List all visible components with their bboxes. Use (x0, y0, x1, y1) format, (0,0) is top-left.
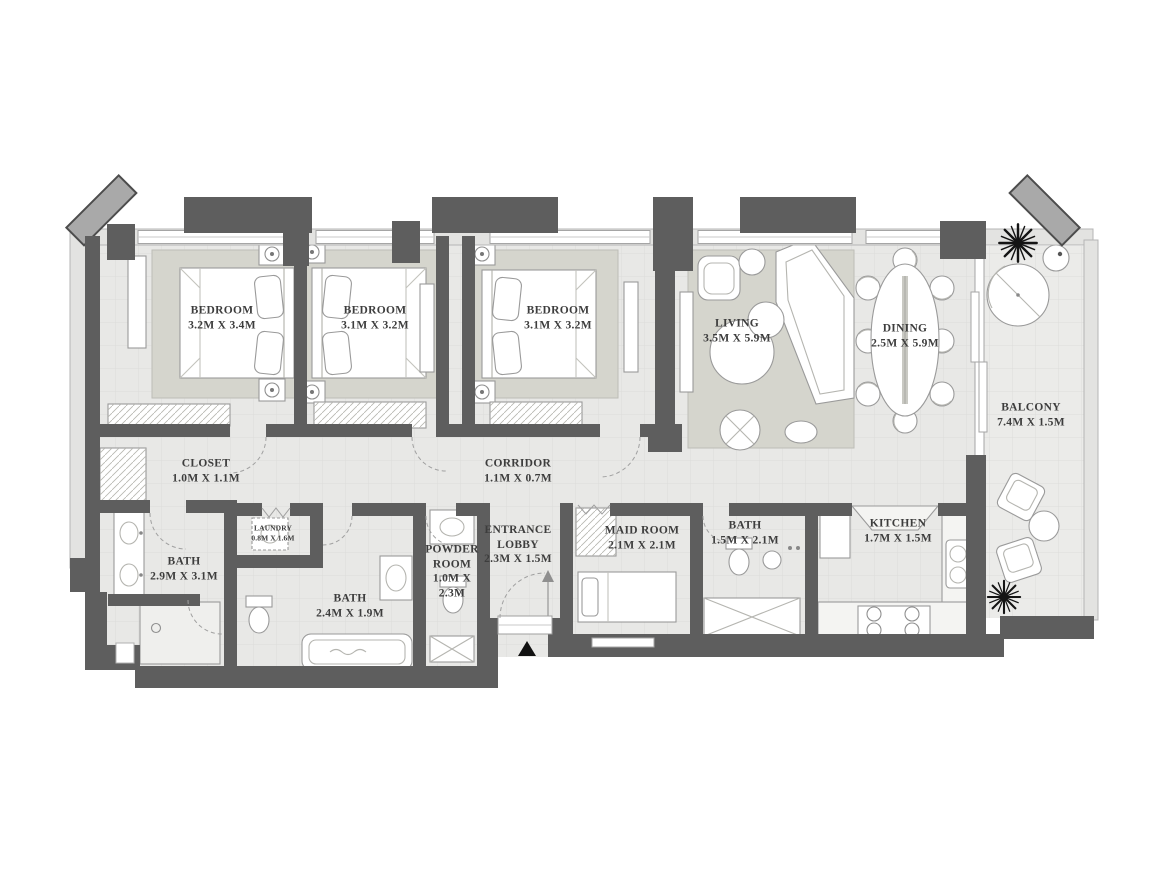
dresser (624, 282, 638, 372)
room-name: KITCHEN (848, 516, 948, 531)
room-dims: 0.8M X 1.6M (238, 533, 308, 543)
toilet (729, 549, 749, 575)
room-dims: 7.4M X 1.5M (981, 415, 1081, 430)
room-dims: 3.1M X 3.2M (320, 318, 430, 333)
room-label-bath-3: BATH 1.5M X 2.1M (700, 518, 790, 547)
room-dims: 1.7M X 1.5M (848, 531, 948, 546)
room-name: BATH (305, 591, 395, 606)
room-label-bedroom-3: BEDROOM 3.1M X 3.2M (503, 303, 613, 332)
room-dims: 1.0M X 1.1M (151, 471, 261, 486)
room-name: BALCONY (981, 400, 1081, 415)
bidet (763, 551, 781, 569)
room-name: BATH (139, 554, 229, 569)
room-name: BEDROOM (503, 303, 613, 318)
plant-icon (988, 581, 1020, 613)
room-label-maid-room: MAID ROOM 2.1M X 2.1M (584, 523, 700, 552)
room-label-closet: CLOSET 1.0M X 1.1M (151, 456, 261, 485)
room-label-living: LIVING 3.5M X 5.9M (687, 316, 787, 345)
room-name: BATH (700, 518, 790, 533)
dresser (128, 256, 146, 348)
room-label-entrance-lobby: ENTRANCE LOBBY 2.3M X 1.5M (479, 523, 557, 567)
room-dims: 1.5M X 2.1M (700, 533, 790, 548)
room-dims: 2.1M X 2.1M (584, 538, 700, 553)
shower (140, 602, 220, 664)
floor-plan-drawing (0, 0, 1170, 870)
toilet (249, 607, 269, 633)
stove (858, 606, 930, 638)
maid-window (592, 638, 654, 647)
room-label-corridor: CORRIDOR 1.1M X 0.7M (463, 456, 573, 485)
room-name: ENTRANCE LOBBY (479, 523, 557, 552)
room-name: BEDROOM (320, 303, 430, 318)
floor-plan: BEDROOM 3.2M X 3.4M BEDROOM 3.1M X 3.2M … (0, 0, 1170, 870)
room-dims: 2.3M X 1.5M (479, 552, 557, 567)
room-dims: 2.4M X 1.9M (305, 606, 395, 621)
room-label-dining: DINING 2.5M X 5.9M (855, 321, 955, 350)
room-name: MAID ROOM (584, 523, 700, 538)
room-name: POWDER ROOM (421, 543, 483, 572)
room-name: LAUNDRY (238, 523, 308, 533)
ottoman (785, 421, 817, 443)
side-table (1029, 511, 1059, 541)
bathtub (302, 634, 412, 670)
side-table (1043, 245, 1069, 271)
room-label-powder-room: POWDER ROOM 1.0M X 2.3M (421, 543, 483, 602)
room-dims: 2.5M X 5.9M (855, 336, 955, 351)
room-name: BEDROOM (167, 303, 277, 318)
room-dims: 2.9M X 3.1M (139, 569, 229, 584)
room-label-balcony: BALCONY 7.4M X 1.5M (981, 400, 1081, 429)
room-name: CORRIDOR (463, 456, 573, 471)
room-name: DINING (855, 321, 955, 336)
room-name: CLOSET (151, 456, 261, 471)
room-label-bath-2: BATH 2.4M X 1.9M (305, 591, 395, 620)
room-label-bath-master: BATH 2.9M X 3.1M (139, 554, 229, 583)
room-label-kitchen: KITCHEN 1.7M X 1.5M (848, 516, 948, 545)
room-dims: 1.1M X 0.7M (463, 471, 573, 486)
room-dims: 3.2M X 3.4M (167, 318, 277, 333)
toilet-tank (246, 596, 272, 607)
room-label-bedroom-1: BEDROOM 3.2M X 3.4M (167, 303, 277, 332)
nightstand (259, 379, 285, 401)
plant-icon (999, 224, 1036, 261)
room-dims: 3.1M X 3.2M (503, 318, 613, 333)
room-label-bedroom-2: BEDROOM 3.1M X 3.2M (320, 303, 430, 332)
pillow (582, 578, 598, 616)
room-name: LIVING (687, 316, 787, 331)
room-dims: 3.5M X 5.9M (687, 331, 787, 346)
room-dims: 1.0M X 2.3M (421, 572, 483, 601)
side-table (739, 249, 765, 275)
room-label-laundry: LAUNDRY 0.8M X 1.6M (238, 523, 308, 542)
nightstand (259, 243, 285, 265)
